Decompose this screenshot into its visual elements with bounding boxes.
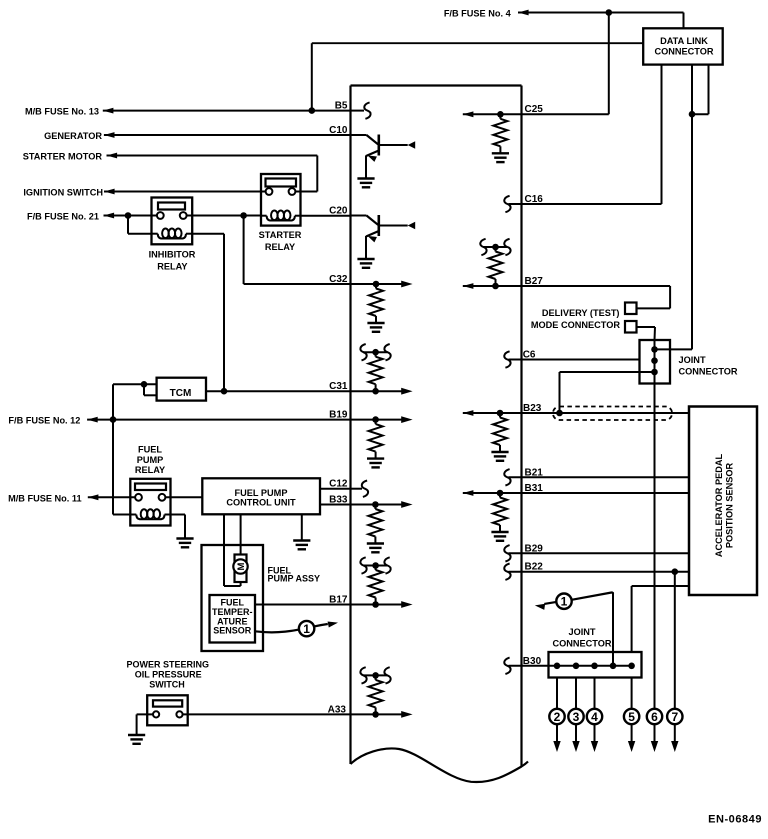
svg-text:F/B FUSE No. 21: F/B FUSE No. 21 <box>27 212 99 222</box>
svg-text:STARTER MOTOR: STARTER MOTOR <box>23 152 103 162</box>
svg-text:ACCELERATOR PEDAL: ACCELERATOR PEDAL <box>714 453 724 557</box>
svg-text:EN-06849: EN-06849 <box>708 814 762 826</box>
svg-text:CONNECTOR: CONNECTOR <box>552 638 611 648</box>
svg-text:SWITCH: SWITCH <box>149 679 185 689</box>
svg-text:3: 3 <box>573 710 580 724</box>
svg-text:DELIVERY (TEST): DELIVERY (TEST) <box>542 308 620 318</box>
svg-text:DATA LINK: DATA LINK <box>660 36 708 46</box>
svg-text:B27: B27 <box>525 276 544 287</box>
svg-text:IGNITION SWITCH: IGNITION SWITCH <box>23 188 103 198</box>
svg-text:JOINT: JOINT <box>679 355 706 365</box>
svg-text:B19: B19 <box>329 410 348 421</box>
svg-text:M/B FUSE No. 13: M/B FUSE No. 13 <box>25 107 99 117</box>
svg-text:B31: B31 <box>525 483 544 494</box>
svg-text:C16: C16 <box>525 194 544 205</box>
svg-text:B33: B33 <box>329 495 348 506</box>
svg-text:M: M <box>236 562 247 570</box>
svg-text:OIL PRESSURE: OIL PRESSURE <box>135 670 202 680</box>
svg-text:B21: B21 <box>525 467 544 478</box>
svg-text:C12: C12 <box>329 479 348 490</box>
svg-text:C31: C31 <box>329 381 348 392</box>
svg-text:GENERATOR: GENERATOR <box>44 131 102 141</box>
svg-text:B22: B22 <box>525 562 544 573</box>
svg-text:B17: B17 <box>329 595 348 606</box>
svg-text:7: 7 <box>671 710 678 724</box>
svg-text:5: 5 <box>628 710 635 724</box>
svg-text:RELAY: RELAY <box>157 262 187 272</box>
svg-text:B29: B29 <box>525 543 544 554</box>
svg-text:1: 1 <box>303 622 310 636</box>
svg-text:STARTER: STARTER <box>259 230 302 240</box>
svg-text:RELAY: RELAY <box>135 465 165 475</box>
svg-text:2: 2 <box>554 710 561 724</box>
svg-text:C10: C10 <box>329 125 348 136</box>
svg-text:JOINT: JOINT <box>568 627 595 637</box>
svg-text:6: 6 <box>651 710 658 724</box>
svg-text:B23: B23 <box>523 403 542 414</box>
svg-text:4: 4 <box>591 710 598 724</box>
svg-text:TCM: TCM <box>170 388 192 399</box>
svg-text:F/B FUSE No. 12: F/B FUSE No. 12 <box>8 416 80 426</box>
svg-text:M/B FUSE No. 11: M/B FUSE No. 11 <box>8 493 82 503</box>
svg-text:POSITION SENSOR: POSITION SENSOR <box>725 463 735 549</box>
svg-text:1: 1 <box>561 595 568 609</box>
svg-text:A33: A33 <box>328 704 347 715</box>
svg-text:SENSOR: SENSOR <box>213 626 252 636</box>
svg-text:C32: C32 <box>329 274 348 285</box>
svg-text:PUMP ASSY: PUMP ASSY <box>268 573 321 583</box>
svg-text:INHIBITOR: INHIBITOR <box>149 249 196 259</box>
svg-text:CONNECTOR: CONNECTOR <box>679 366 738 376</box>
svg-text:B5: B5 <box>335 101 348 112</box>
svg-text:PUMP: PUMP <box>137 455 164 465</box>
svg-text:C25: C25 <box>525 104 544 115</box>
svg-text:RELAY: RELAY <box>265 242 295 252</box>
svg-text:FUEL PUMP: FUEL PUMP <box>235 488 288 498</box>
svg-text:FUEL: FUEL <box>138 444 162 454</box>
svg-text:B30: B30 <box>523 656 542 667</box>
svg-text:CONNECTOR: CONNECTOR <box>654 46 713 56</box>
svg-text:C20: C20 <box>329 206 348 217</box>
svg-text:FUEL: FUEL <box>221 598 245 608</box>
svg-text:MODE CONNECTOR: MODE CONNECTOR <box>531 320 621 330</box>
svg-text:CONTROL UNIT: CONTROL UNIT <box>226 498 296 508</box>
svg-text:F/B FUSE No. 4: F/B FUSE No. 4 <box>444 9 512 19</box>
svg-text:POWER STEERING: POWER STEERING <box>127 659 210 669</box>
svg-text:C6: C6 <box>523 350 536 361</box>
